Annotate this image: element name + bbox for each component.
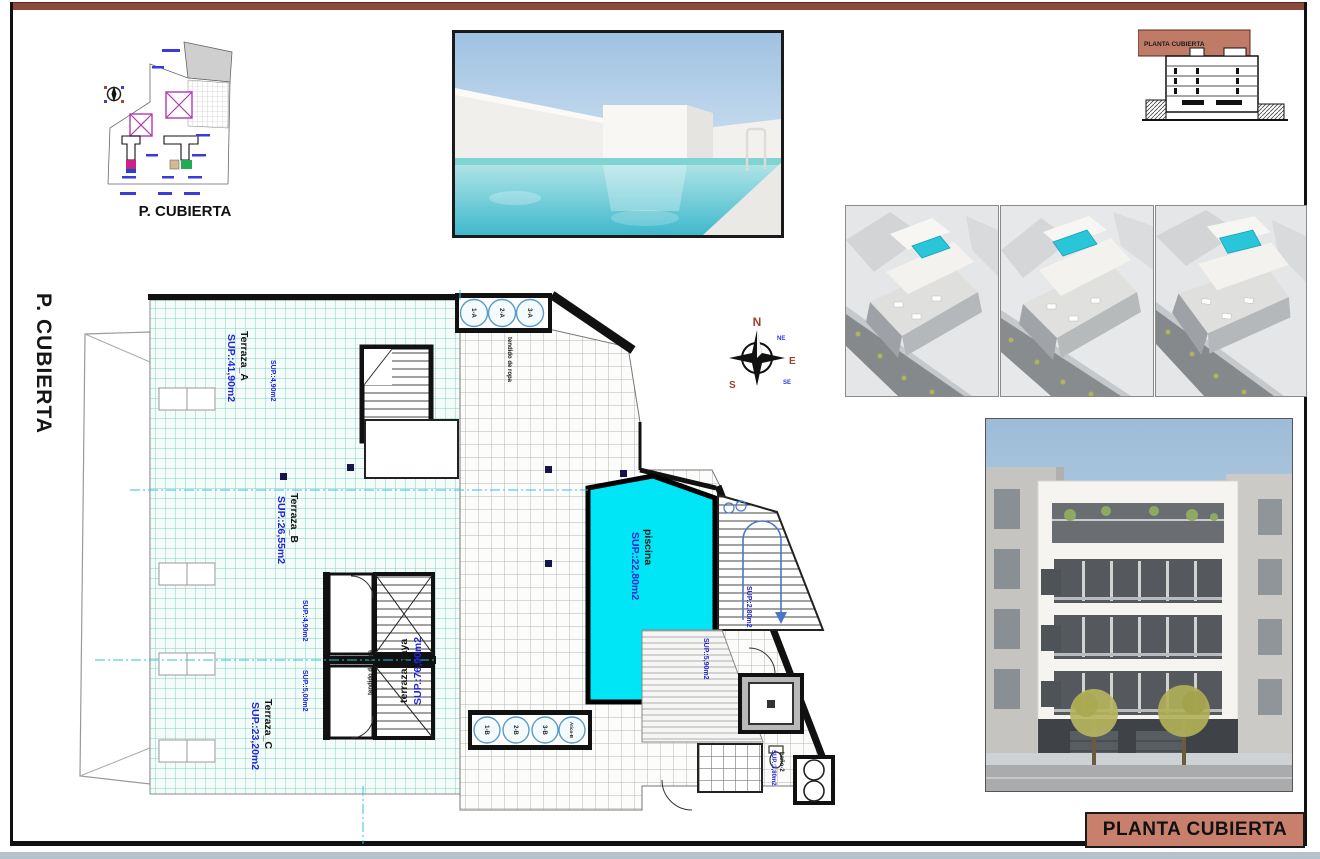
label-sup-bano: SUP.:3,80m2 (770, 750, 776, 786)
compass-icon: N E S NE SE (729, 315, 796, 391)
aerial-render-3 (1155, 205, 1307, 397)
compass-se: SE (783, 380, 791, 386)
floor-plan: 1-A 2-A 3-A (75, 288, 840, 848)
room-sup-terraza-b: SUP.:26,55m2 (276, 496, 287, 564)
balcony-strip (80, 332, 150, 784)
bottom-bar (0, 852, 1320, 859)
room-sup-terraza-a: SUP.:41,90m2 (226, 334, 237, 402)
sheet-title-box: PLANTA CUBIERTA (1085, 812, 1305, 848)
facade-render (985, 418, 1293, 792)
label-tendido-1: tendido de ropa (506, 337, 512, 382)
room-label-terraza-a: Terraza_A (239, 331, 250, 381)
room-label-piscina: piscina (643, 529, 654, 565)
label-sup-stair-right: SUP.:2,80m2 (745, 586, 752, 628)
room-label-terraza-b: Terraza_B (289, 493, 300, 543)
key-plan (92, 36, 247, 204)
plan-side-label: P. CUBIERTA (33, 293, 54, 434)
label-sup-deck: SUP.:5,90m2 (702, 638, 709, 680)
roof-room (365, 420, 458, 478)
section-label: PLANTA CUBIERTA (1144, 41, 1205, 48)
compass-ne: NE (777, 336, 785, 342)
label-sup-stair-mid-b: SUP.:5,00m2 (301, 670, 308, 712)
compass-s: S (729, 380, 736, 391)
aerial-render-2 (1000, 205, 1154, 397)
tank-room-bottom: 1-B 2-B 3-B Ático-B (468, 710, 592, 750)
elevator (740, 675, 802, 732)
pergola-grid (698, 744, 762, 792)
stair-right (718, 495, 823, 630)
room-label-playa: terraza/playa (399, 639, 410, 703)
label-bano: baño-2 (778, 752, 784, 772)
tank-label: 3-B (541, 725, 547, 735)
tank-label: 1-A (470, 308, 476, 318)
compass-n: N (753, 315, 762, 329)
room-sup-piscina: SUP.:22,80m2 (630, 532, 641, 600)
tank-label: 1-B (483, 725, 489, 735)
tank-room-side (793, 755, 835, 805)
tank-room-top: 1-A 2-A 3-A (455, 293, 552, 333)
border-right (1304, 2, 1307, 844)
section-thumbnail: PLANTA CUBIERTA (1138, 28, 1293, 123)
tank-label: 2-B (512, 725, 518, 735)
room-sup-playa: SUP.:76,90m2 (413, 637, 424, 705)
room-label-terraza-c: Terraza_C (263, 699, 274, 749)
label-sup-stair-top: SUP.:4,90m2 (269, 360, 276, 402)
tank-label: 2-A (498, 308, 504, 318)
plan-sheet: P. CUBIERTA (0, 0, 1320, 859)
keyplan-compass-icon (104, 86, 124, 103)
aerial-render-1 (845, 205, 999, 397)
tank-label: 3-A (526, 308, 532, 318)
compass-e: E (789, 356, 796, 367)
label-tendido-2: tendido de ropa (368, 650, 374, 695)
label-sup-stair-mid-a: SUP.:4,90m2 (301, 600, 308, 642)
tank-label: Ático-B (569, 722, 575, 739)
room-sup-terraza-c: SUP.:23,20m2 (250, 702, 261, 770)
top-strip (12, 2, 1306, 10)
keyplan-caption: P. CUBIERTA (125, 203, 245, 220)
border-left (10, 2, 13, 844)
pool-render (452, 30, 784, 238)
